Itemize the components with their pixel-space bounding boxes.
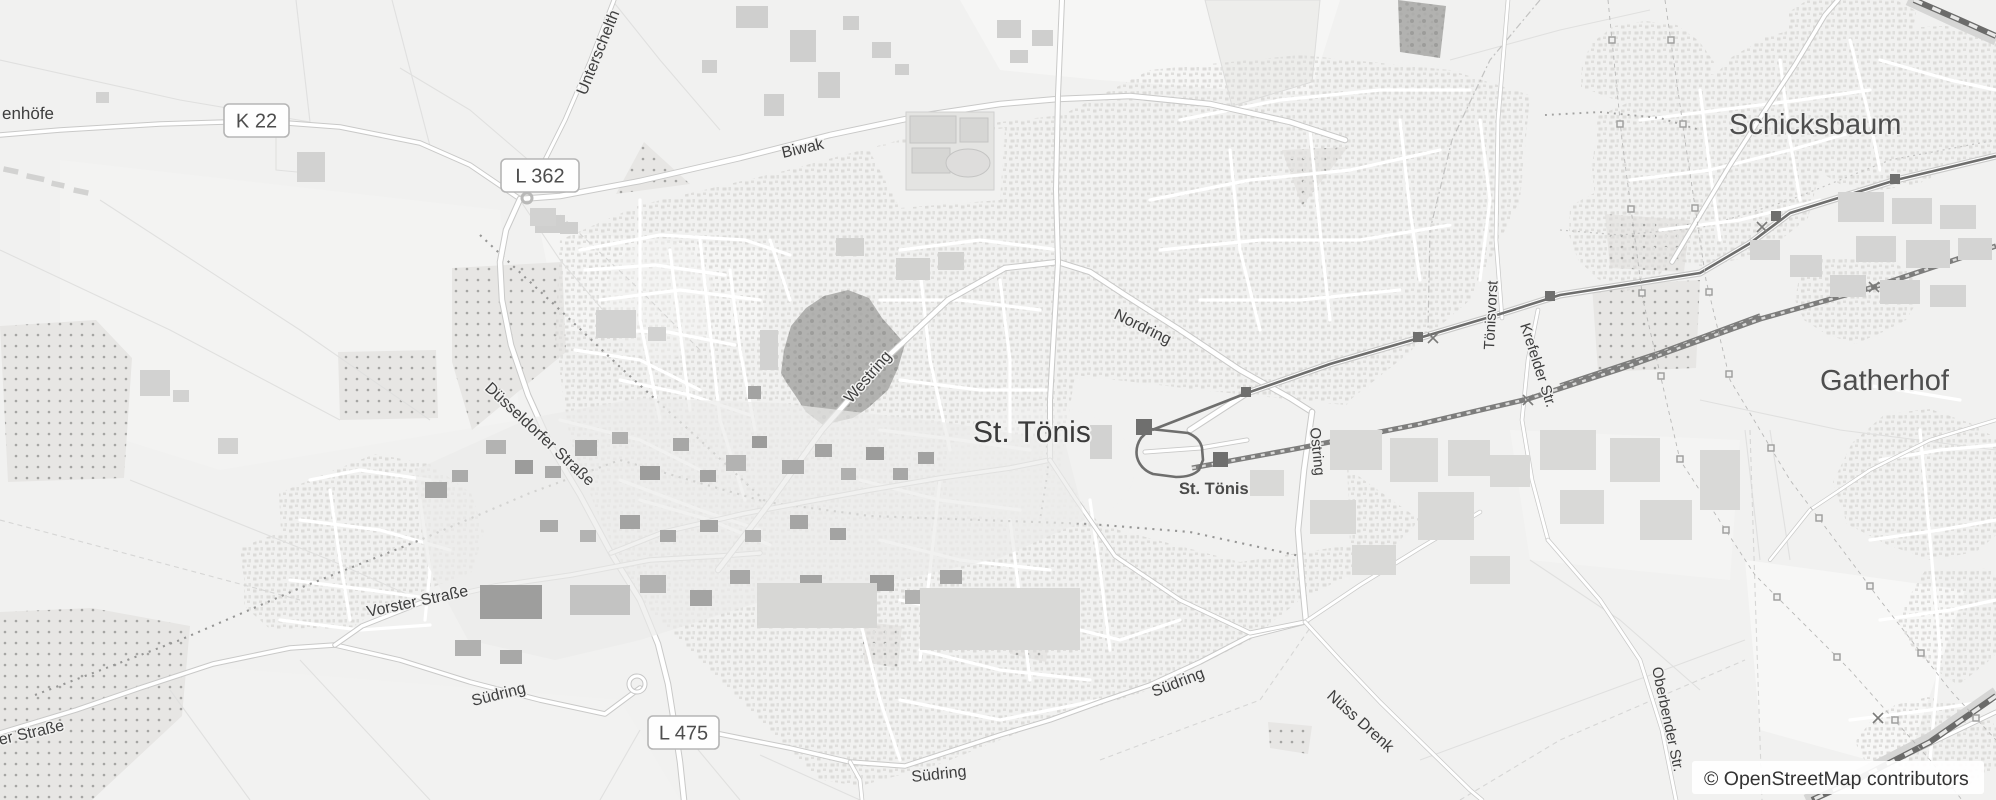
svg-text:L 475: L 475	[659, 723, 708, 745]
svg-text:Schicksbaum: Schicksbaum	[1729, 109, 1901, 141]
svg-text:© OpenStreetMap contributors: © OpenStreetMap contributors	[1704, 768, 1969, 790]
svg-text:Gatherhof: Gatherhof	[1820, 365, 1950, 397]
svg-text:St. Tönis: St. Tönis	[973, 416, 1091, 449]
svg-text:St. Tönis: St. Tönis	[1179, 480, 1249, 498]
svg-text:enhöfe: enhöfe	[2, 104, 54, 123]
svg-text:K 22: K 22	[236, 111, 277, 133]
svg-text:L 362: L 362	[515, 166, 564, 188]
